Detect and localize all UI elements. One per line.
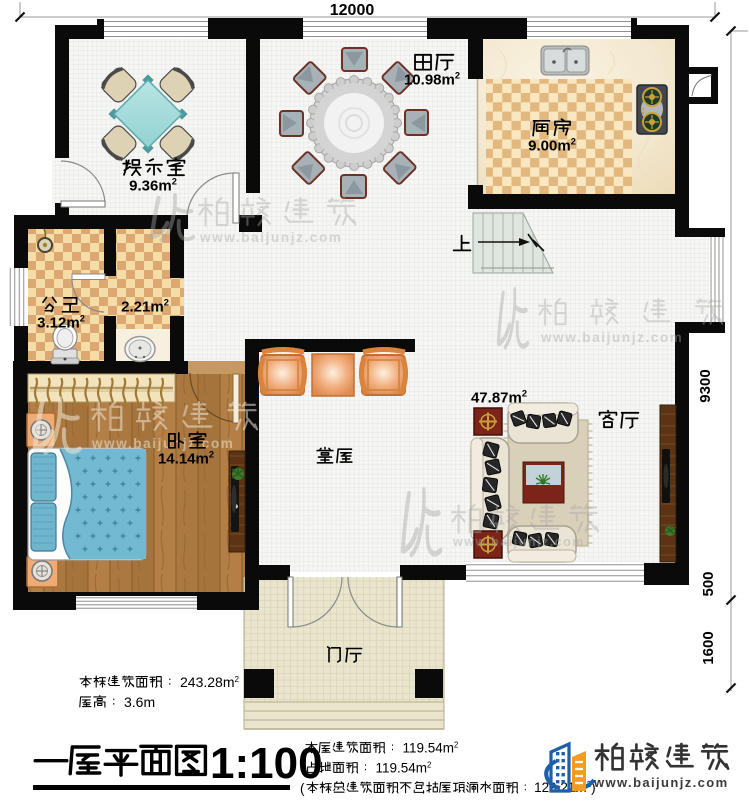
svg-text:10.98m2: 10.98m2 (404, 71, 460, 89)
svg-text:www.baijunjz.com: www.baijunjz.com (91, 436, 234, 451)
svg-text:14.14m2: 14.14m2 (158, 450, 214, 468)
svg-text:2.21m2: 2.21m2 (121, 298, 169, 316)
svg-text:www.baijunjz.com: www.baijunjz.com (540, 330, 683, 345)
svg-text:47.87m2: 47.87m2 (471, 389, 527, 407)
svg-text:1600: 1600 (700, 631, 717, 664)
svg-text:9.00m2: 9.00m2 (528, 137, 576, 155)
svg-text:9.36m2: 9.36m2 (129, 177, 177, 195)
svg-text:119.54m2: 119.54m2 (403, 740, 459, 755)
svg-text:9300: 9300 (697, 369, 714, 402)
svg-text:500: 500 (700, 571, 717, 596)
svg-text:243.28m2: 243.28m2 (180, 674, 239, 690)
svg-text:12000: 12000 (330, 2, 375, 19)
svg-text:3.12m2: 3.12m2 (37, 314, 85, 332)
svg-text:3.6m: 3.6m (124, 694, 155, 710)
svg-text:www.baijunjz.com: www.baijunjz.com (452, 535, 585, 549)
svg-text:1:100: 1:100 (210, 739, 323, 788)
svg-text:www.baijunjz.com: www.baijunjz.com (593, 775, 729, 790)
svg-text:www.baijunjz.com: www.baijunjz.com (199, 230, 342, 245)
svg-text:119.54m2: 119.54m2 (376, 760, 432, 775)
